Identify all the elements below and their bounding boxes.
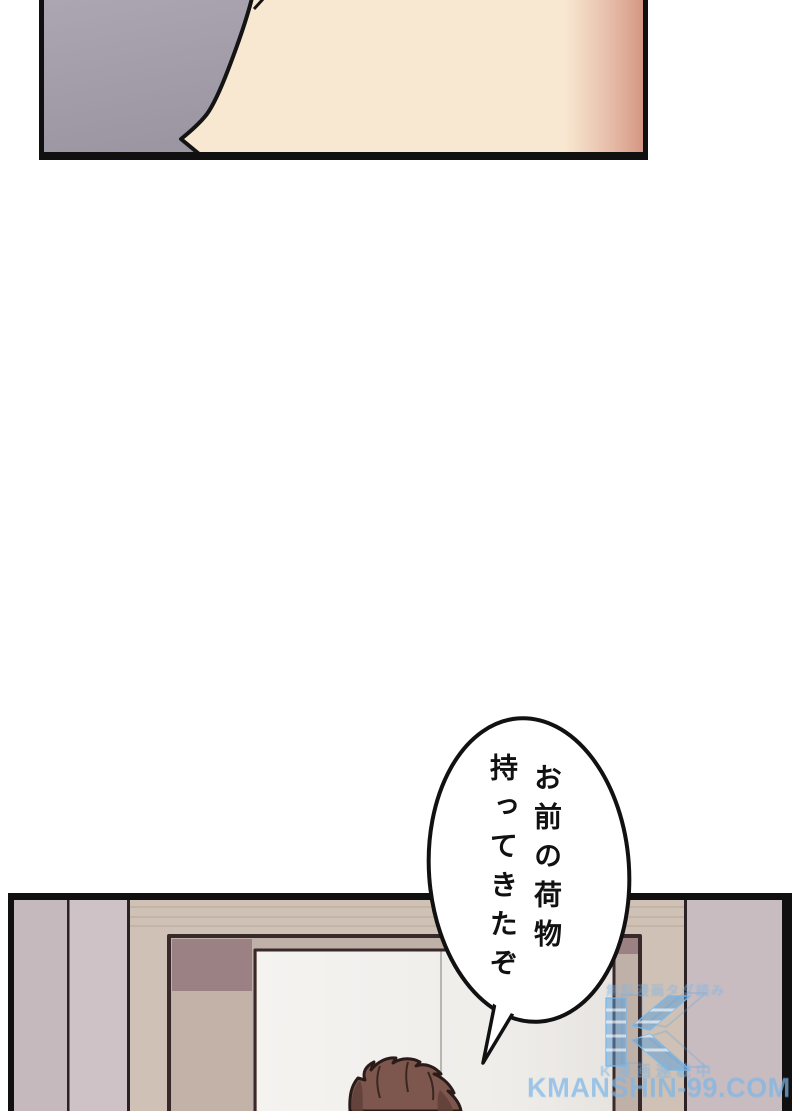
manga-page: お前の荷物 持ってきたぞ 無料漫画タダ読み K漫画連載中 (0, 0, 800, 1111)
door-frame-dark-block (172, 939, 252, 991)
top-panel-border-bottom (39, 152, 648, 160)
bottom-panel-border-right (782, 893, 792, 1111)
page-artwork (0, 0, 800, 1111)
skin-shade (565, 0, 643, 158)
bottom-panel-border-top (8, 893, 792, 900)
top-panel (39, 0, 648, 160)
left-wall-a (14, 899, 69, 1111)
speech-bubble-text: お前の荷物 持ってきたぞ (480, 753, 568, 1023)
watermark-k-logo-icon (592, 978, 724, 1078)
door-frame-left-jamb (172, 991, 252, 1111)
bottom-panel-border-left (8, 893, 14, 1111)
left-wall-edge (127, 899, 130, 1111)
left-wall-b (69, 899, 128, 1111)
left-wall-seam (67, 899, 70, 1111)
top-panel-border-left (39, 0, 44, 160)
speech-line-2: 持ってきたぞ (480, 753, 524, 1023)
top-panel-border-right (643, 0, 648, 160)
speech-line-1: お前の荷物 (524, 753, 568, 1023)
